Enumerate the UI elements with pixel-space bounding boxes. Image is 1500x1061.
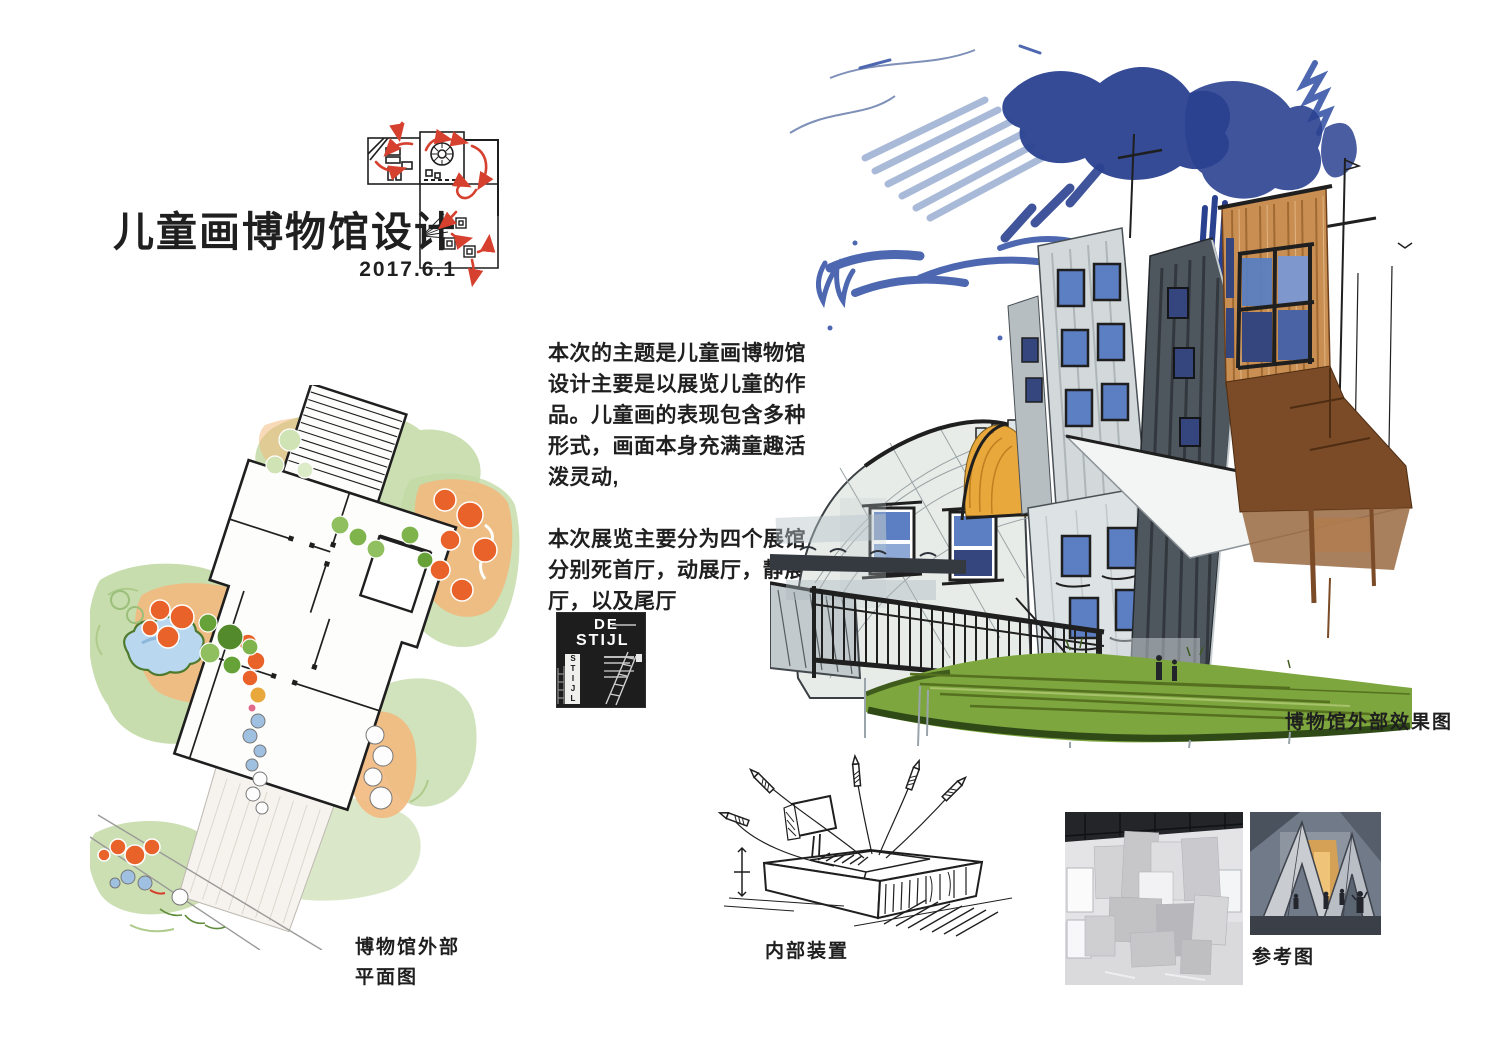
exterior-rendering-illustration [770, 38, 1430, 748]
site-plan-caption-line1: 博物馆外部 [355, 933, 460, 963]
intro-paragraph-2: 本次展览主要分为四个展馆分别死首厅，动展厅，静展厅，以及尾厅 [548, 524, 806, 617]
site-plan-illustration [90, 385, 520, 950]
intro-paragraph-1: 本次的主题是儿童画博物馆设计主要是以展览儿童的作品。儿童画的表现包含多种形式，画… [548, 338, 806, 493]
installation-caption: 内部装置 [765, 936, 849, 963]
exterior-caption: 博物馆外部效果图 [1285, 707, 1453, 734]
destijl-poster: DE STIJL STIJL [556, 612, 646, 708]
reference-photo-gallery [1065, 812, 1243, 985]
reference-caption: 参考图 [1252, 942, 1315, 969]
circulation-diagram-sketch [360, 118, 505, 293]
poster-ladder-icon [556, 612, 646, 708]
presentation-board: 儿童画博物馆设计 2017.6.1 [0, 0, 1500, 1061]
site-plan-caption: 博物馆外部 平面图 [355, 933, 460, 993]
installation-sketch [714, 748, 1014, 943]
reference-photo-pavilion [1250, 812, 1381, 935]
site-plan-caption-line2: 平面图 [355, 963, 460, 993]
